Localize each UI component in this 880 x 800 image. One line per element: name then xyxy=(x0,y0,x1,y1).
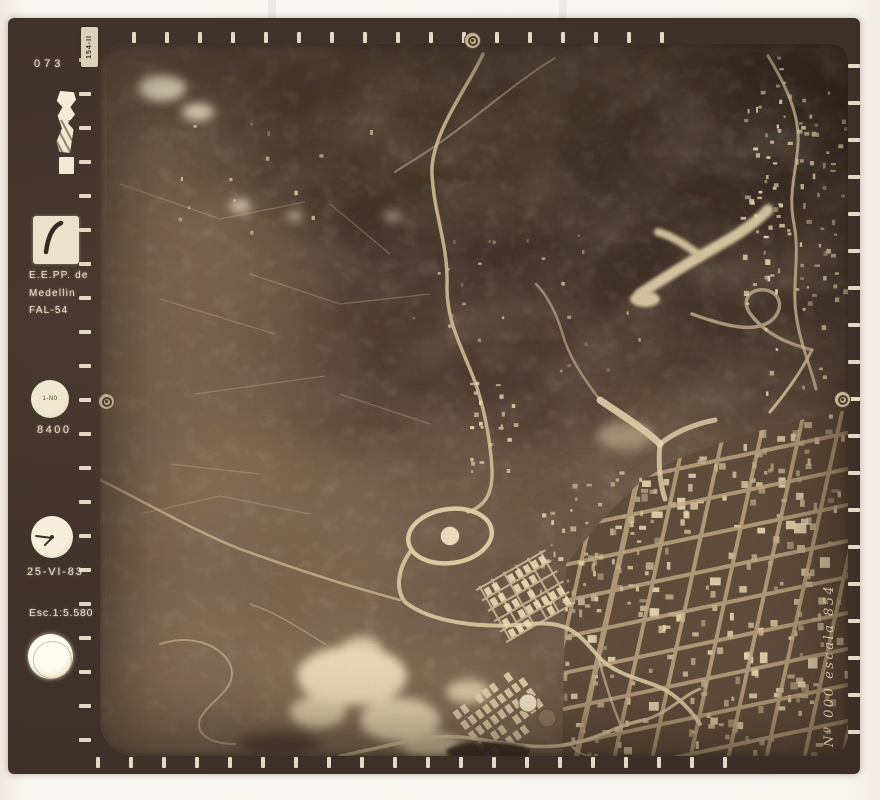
sprocket-tick xyxy=(848,656,860,660)
sprocket-tick xyxy=(492,757,496,768)
agency-line: E.E.PP. de xyxy=(29,267,89,285)
sprocket-tick xyxy=(79,738,91,742)
sprocket-tick xyxy=(198,32,202,43)
sprocket-tick xyxy=(393,757,397,768)
sprocket-tick xyxy=(79,636,91,640)
sprocket-tick xyxy=(495,32,499,43)
sprocket-tick xyxy=(848,360,860,364)
sprocket-tick xyxy=(561,32,565,43)
sprocket-tick xyxy=(79,262,91,266)
sprocket-tick xyxy=(79,126,91,130)
sprocket-tick xyxy=(848,286,860,290)
sprocket-tick xyxy=(79,364,91,368)
sprocket-tick xyxy=(627,32,631,43)
altimeter-value: 8400 xyxy=(37,424,71,436)
sprocket-tick xyxy=(690,757,694,768)
aerial-photo-art xyxy=(100,44,848,756)
sprocket-tick xyxy=(396,32,400,43)
sprocket-tick xyxy=(79,534,91,538)
altimeter-dial: 1-N0 xyxy=(31,380,69,418)
photo-scale: Esc.1:5.580 xyxy=(29,607,93,619)
sprocket-tick xyxy=(79,398,91,402)
drift-indicator xyxy=(33,216,79,264)
drift-needle-icon xyxy=(33,216,79,264)
level-bubble xyxy=(28,634,73,679)
aerial-photograph xyxy=(100,44,848,756)
sprocket-tick xyxy=(79,330,91,334)
sprocket-tick xyxy=(848,323,860,327)
sprocket-tick xyxy=(79,602,91,606)
sprocket-tick xyxy=(624,757,628,768)
sprocket-tick xyxy=(79,466,91,470)
sprocket-tick xyxy=(297,32,301,43)
clock-pin xyxy=(50,535,54,539)
sprocket-tick xyxy=(261,757,265,768)
sprocket-tick xyxy=(848,693,860,697)
sprocket-tick xyxy=(429,32,433,43)
sprocket-tick xyxy=(848,545,860,549)
sprocket-tick xyxy=(660,32,664,43)
sprocket-tick xyxy=(525,757,529,768)
fiducial-mark-top xyxy=(464,32,481,49)
sprocket-tick xyxy=(79,160,91,164)
sprocket-tick xyxy=(79,704,91,708)
sprocket-tick xyxy=(363,32,367,43)
sprocket-tick xyxy=(165,32,169,43)
sprocket-tick xyxy=(848,138,860,142)
sprocket-tick xyxy=(129,757,133,768)
sprocket-tick xyxy=(848,64,860,68)
sprocket-tick xyxy=(848,582,860,586)
sprocket-tick xyxy=(848,619,860,623)
corner-film-tag: 154-II xyxy=(81,27,98,67)
sprocket-tick xyxy=(848,730,860,734)
sprocket-tick xyxy=(79,670,91,674)
film-frame: 073 E.E.PP. de Medellin FAL-54 1-N0 8400… xyxy=(8,18,860,774)
sprocket-tick xyxy=(426,757,430,768)
sprocket-tick xyxy=(848,249,860,253)
sprocket-tick xyxy=(528,32,532,43)
sprocket-tick xyxy=(294,757,298,768)
sprocket-tick xyxy=(594,32,598,43)
sprocket-tick xyxy=(848,434,860,438)
static-mark-small xyxy=(59,157,74,174)
sprocket-tick xyxy=(79,432,91,436)
scanner-streak xyxy=(559,0,567,20)
sprocket-tick xyxy=(79,228,91,232)
altimeter-dial-reading: 1-N0 xyxy=(42,396,57,402)
static-mark xyxy=(56,91,76,153)
sprocket-tick xyxy=(848,101,860,105)
corner-tag-text: 154-II xyxy=(86,35,93,59)
sprocket-tick xyxy=(195,757,199,768)
sprocket-tick xyxy=(848,175,860,179)
sprocket-tick xyxy=(657,757,661,768)
agency-line: FAL-54 xyxy=(29,302,89,320)
sprocket-tick xyxy=(723,757,727,768)
sprocket-tick xyxy=(330,32,334,43)
sprocket-tick xyxy=(231,32,235,43)
photo-date: 25-VI-83 xyxy=(27,566,84,578)
sprocket-tick xyxy=(79,500,91,504)
sprocket-tick xyxy=(848,508,860,512)
fiducial-mark-right xyxy=(834,391,851,408)
sprocket-tick xyxy=(591,757,595,768)
sprocket-tick xyxy=(848,212,860,216)
agency-label: E.E.PP. de Medellin FAL-54 xyxy=(29,267,89,320)
sprocket-tick xyxy=(79,92,91,96)
scanned-aerial-photo-page: { "film_margin": { "frame_number": "073"… xyxy=(0,0,880,800)
sprocket-tick xyxy=(459,757,463,768)
sprocket-tick xyxy=(327,757,331,768)
fiducial-mark-left xyxy=(98,393,115,410)
mission-clock xyxy=(31,516,73,558)
scanner-streak xyxy=(268,0,276,20)
sprocket-tick xyxy=(264,32,268,43)
sprocket-tick xyxy=(162,757,166,768)
sprocket-tick xyxy=(79,194,91,198)
agency-line: Medellin xyxy=(29,285,89,303)
frame-number: 073 xyxy=(34,58,64,70)
sprocket-tick xyxy=(558,757,562,768)
sprocket-tick xyxy=(132,32,136,43)
sprocket-tick xyxy=(96,757,100,768)
handwritten-edge-annotation: Nº 000 escala 854 xyxy=(822,584,837,747)
sprocket-tick xyxy=(848,471,860,475)
sprocket-tick xyxy=(228,757,232,768)
sprocket-tick xyxy=(360,757,364,768)
